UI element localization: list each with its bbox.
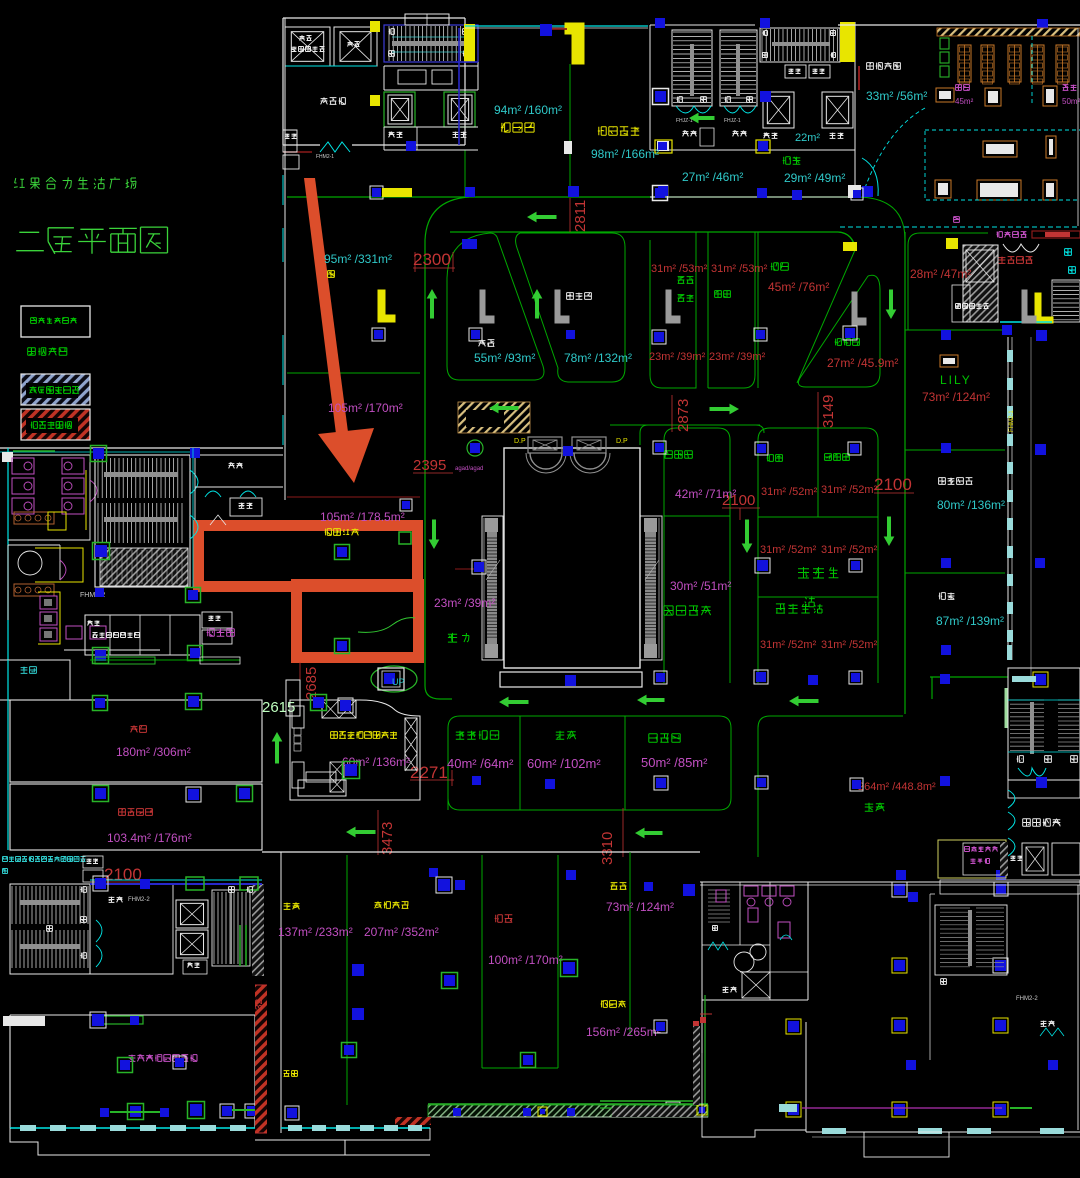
svg-text:100m² /170m²: 100m² /170m² bbox=[488, 953, 563, 967]
svg-text:2100: 2100 bbox=[104, 865, 142, 884]
svg-text:2300: 2300 bbox=[413, 250, 451, 269]
svg-text:FHM2-1: FHM2-1 bbox=[1009, 410, 1015, 432]
svg-text:3310: 3310 bbox=[599, 832, 616, 865]
svg-text:3149: 3149 bbox=[820, 395, 837, 428]
svg-text:45m² /76m²: 45m² /76m² bbox=[768, 280, 829, 294]
svg-text:UP: UP bbox=[392, 677, 405, 687]
svg-text:FHM2-2: FHM2-2 bbox=[1016, 996, 1038, 1002]
svg-text:103.4m² /176m²: 103.4m² /176m² bbox=[107, 831, 192, 845]
svg-text:207m² /352m²: 207m² /352m² bbox=[364, 925, 439, 939]
svg-text:23m² /39m²: 23m² /39m² bbox=[709, 351, 766, 363]
svg-text:31m² /53m²: 31m² /53m² bbox=[711, 263, 768, 275]
svg-text:2100: 2100 bbox=[874, 475, 912, 494]
svg-text:28m² /47m²: 28m² /47m² bbox=[910, 267, 971, 281]
svg-text:80m² /136m²: 80m² /136m² bbox=[937, 498, 1005, 512]
svg-text:D.P: D.P bbox=[514, 438, 526, 445]
svg-text:32: 32 bbox=[254, 998, 265, 1010]
svg-text:31m² /52m²: 31m² /52m² bbox=[821, 484, 878, 496]
svg-text:50m² /85m²: 50m² /85m² bbox=[641, 755, 708, 770]
svg-text:45m²: 45m² bbox=[955, 97, 974, 106]
svg-text:50m²: 50m² bbox=[1062, 97, 1080, 106]
svg-text:FHJZ-1: FHJZ-1 bbox=[676, 118, 693, 124]
svg-text:55m² /93m²: 55m² /93m² bbox=[474, 351, 535, 365]
svg-text:78m² /132m²: 78m² /132m² bbox=[564, 351, 632, 365]
svg-text:LILY: LILY bbox=[940, 373, 972, 387]
svg-text:42m² /71m²: 42m² /71m² bbox=[675, 487, 736, 501]
svg-text:137m² /233m²: 137m² /233m² bbox=[278, 925, 353, 939]
svg-text:33m² /56m²: 33m² /56m² bbox=[866, 89, 927, 103]
svg-text:95m² /331m²: 95m² /331m² bbox=[324, 252, 392, 266]
svg-text:29m² /49m²: 29m² /49m² bbox=[784, 171, 845, 185]
svg-text:264m² /448.8m²: 264m² /448.8m² bbox=[858, 781, 936, 793]
svg-text:2395: 2395 bbox=[413, 457, 446, 474]
svg-text:31m² /53m²: 31m² /53m² bbox=[651, 263, 708, 275]
svg-text:D.P: D.P bbox=[616, 438, 628, 445]
svg-text:105m² /178.5m²: 105m² /178.5m² bbox=[320, 510, 405, 524]
svg-text:30m² /51m²: 30m² /51m² bbox=[670, 579, 731, 593]
svg-text:87m² /139m²: 87m² /139m² bbox=[936, 614, 1004, 628]
svg-text:156m² /265m²: 156m² /265m² bbox=[586, 1025, 661, 1039]
svg-text:2873: 2873 bbox=[675, 399, 692, 432]
svg-text:31m² /52m²: 31m² /52m² bbox=[821, 544, 878, 556]
svg-text:27m² /46m²: 27m² /46m² bbox=[682, 170, 743, 184]
svg-text:98m² /166m²: 98m² /166m² bbox=[591, 147, 659, 161]
svg-text:180m² /306m²: 180m² /306m² bbox=[116, 745, 191, 759]
svg-text:60m² /102m²: 60m² /102m² bbox=[527, 756, 601, 771]
svg-text:73m² /124m²: 73m² /124m² bbox=[922, 390, 990, 404]
svg-text:FHM2-1: FHM2-1 bbox=[316, 154, 334, 160]
svg-text:31m² /52m²: 31m² /52m² bbox=[760, 639, 817, 651]
svg-text:23m² /39m²: 23m² /39m² bbox=[649, 351, 706, 363]
svg-text:31m² /52m²: 31m² /52m² bbox=[761, 486, 818, 498]
svg-text:agad/agad: agad/agad bbox=[455, 466, 483, 472]
svg-text:2811: 2811 bbox=[572, 200, 589, 232]
svg-text:2271: 2271 bbox=[410, 763, 448, 782]
svg-text:31m² /52m²: 31m² /52m² bbox=[821, 639, 878, 651]
svg-text:94m² /160m²: 94m² /160m² bbox=[494, 103, 562, 117]
svg-text:31m² /52m²: 31m² /52m² bbox=[760, 544, 817, 556]
svg-text:23m² /39m²: 23m² /39m² bbox=[434, 596, 495, 610]
svg-text:FHJZ-1: FHJZ-1 bbox=[724, 118, 741, 124]
svg-text:105m² /170m²: 105m² /170m² bbox=[328, 401, 403, 415]
svg-text:40m² /64m²: 40m² /64m² bbox=[447, 756, 514, 771]
svg-text:27m² /45.9m²: 27m² /45.9m² bbox=[827, 356, 898, 370]
svg-text:73m² /124m²: 73m² /124m² bbox=[606, 900, 674, 914]
svg-text:3473: 3473 bbox=[379, 822, 396, 855]
svg-text:FHM2-2: FHM2-2 bbox=[128, 897, 150, 903]
svg-text:22m²: 22m² bbox=[795, 132, 820, 144]
